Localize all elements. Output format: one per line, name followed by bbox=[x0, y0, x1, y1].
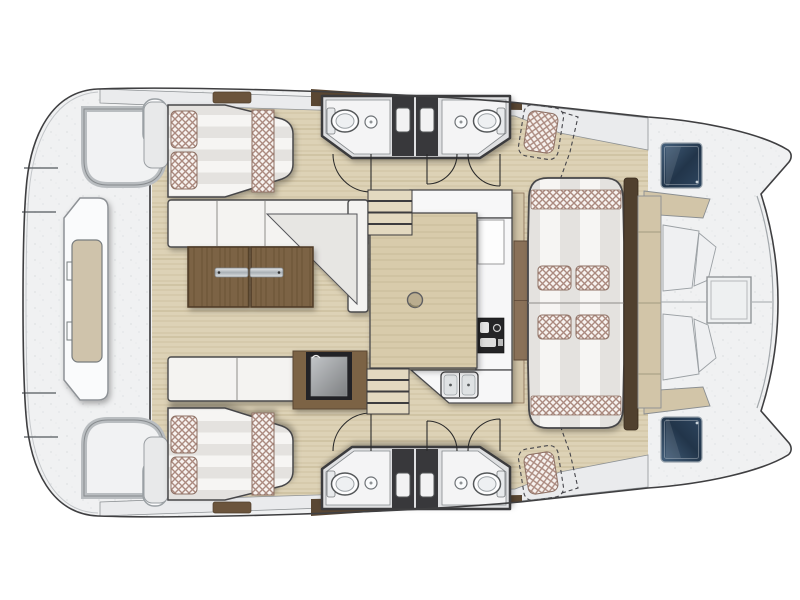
galley-island bbox=[370, 213, 477, 368]
lounge-sunbed bbox=[528, 178, 624, 428]
island-hole bbox=[408, 293, 423, 308]
catamaran bbox=[22, 88, 791, 517]
salon-table bbox=[188, 247, 313, 307]
anchor-locker-hatch bbox=[707, 277, 751, 323]
tender-pod bbox=[64, 198, 108, 400]
lounge-cushion bbox=[538, 266, 571, 290]
lounge-checkered-band bbox=[531, 396, 621, 415]
stairs-aft bbox=[367, 369, 409, 414]
floor-plan-canvas bbox=[0, 0, 800, 600]
mast-beam bbox=[624, 178, 638, 430]
cooler-box bbox=[293, 351, 367, 409]
stairs-forward bbox=[368, 190, 412, 235]
lounge-cushion bbox=[576, 266, 609, 290]
lounge-cushion bbox=[538, 315, 571, 339]
lounge-cushion bbox=[576, 315, 609, 339]
stove bbox=[477, 318, 504, 353]
salon-bench bbox=[168, 357, 307, 401]
lounge-checkered-band bbox=[531, 190, 621, 209]
forward-lounge bbox=[514, 178, 661, 430]
galley bbox=[367, 190, 524, 414]
boat-floor-plan bbox=[0, 0, 800, 600]
counter-cutout bbox=[478, 220, 504, 264]
bow-bench-trim bbox=[638, 196, 661, 408]
double-sink bbox=[441, 372, 478, 398]
tender-pod-inset bbox=[72, 240, 102, 362]
